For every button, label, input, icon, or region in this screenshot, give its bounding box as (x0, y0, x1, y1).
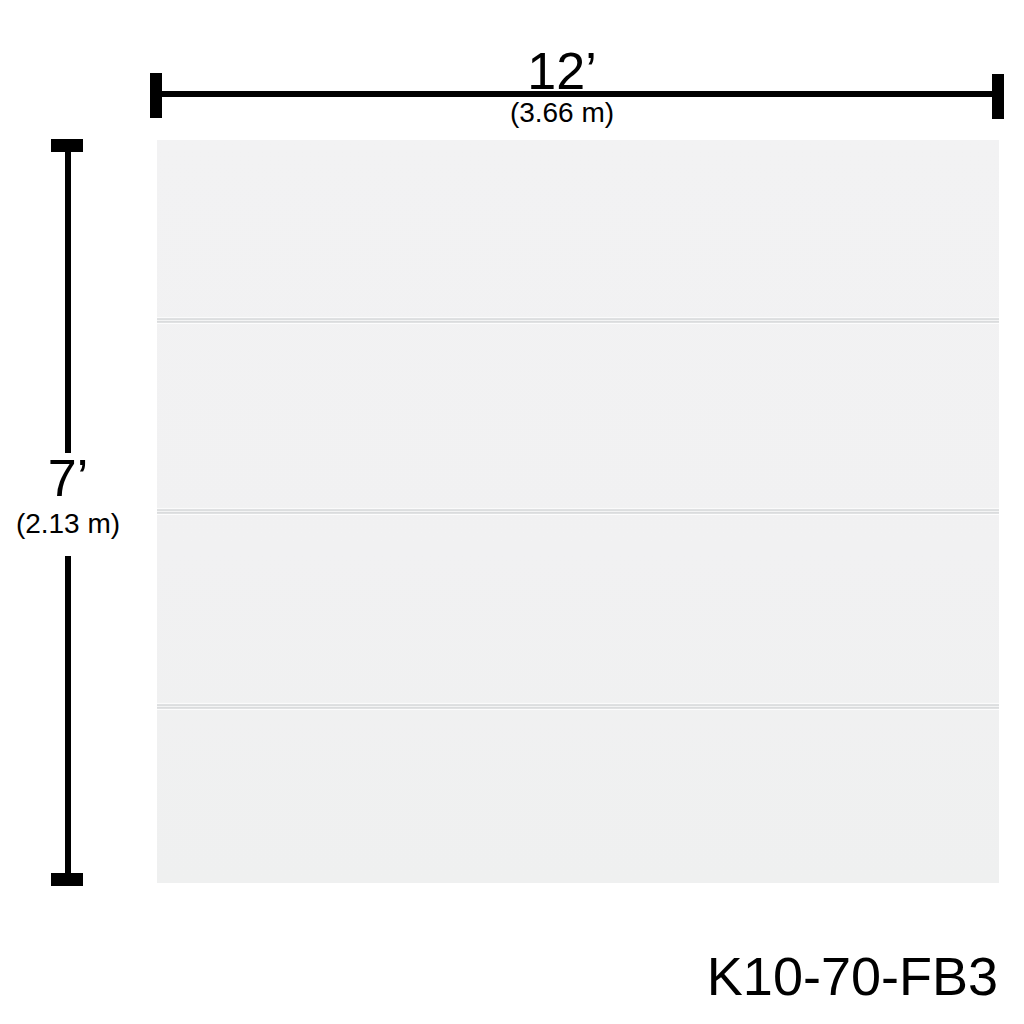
panel-groove (157, 316, 999, 324)
width-dimension-right-cap (992, 74, 1004, 119)
width-meters-label: (3.66 m) (162, 99, 962, 127)
height-dimension-line-upper (65, 150, 71, 453)
height-feet-label: 7’ (0, 452, 136, 504)
panel-groove (157, 507, 999, 515)
model-number-label: K10-70-FB3 (707, 949, 998, 1003)
panel-groove (157, 702, 999, 710)
width-feet-label: 12’ (162, 45, 962, 97)
door-panel (157, 140, 999, 883)
diagram-canvas: 12’ (3.66 m) 7’ (2.13 m) K10-70-FB3 (0, 0, 1024, 1024)
height-meters-label: (2.13 m) (0, 510, 136, 538)
height-dimension-bottom-cap (51, 873, 83, 886)
height-dimension-line-lower (65, 556, 71, 873)
